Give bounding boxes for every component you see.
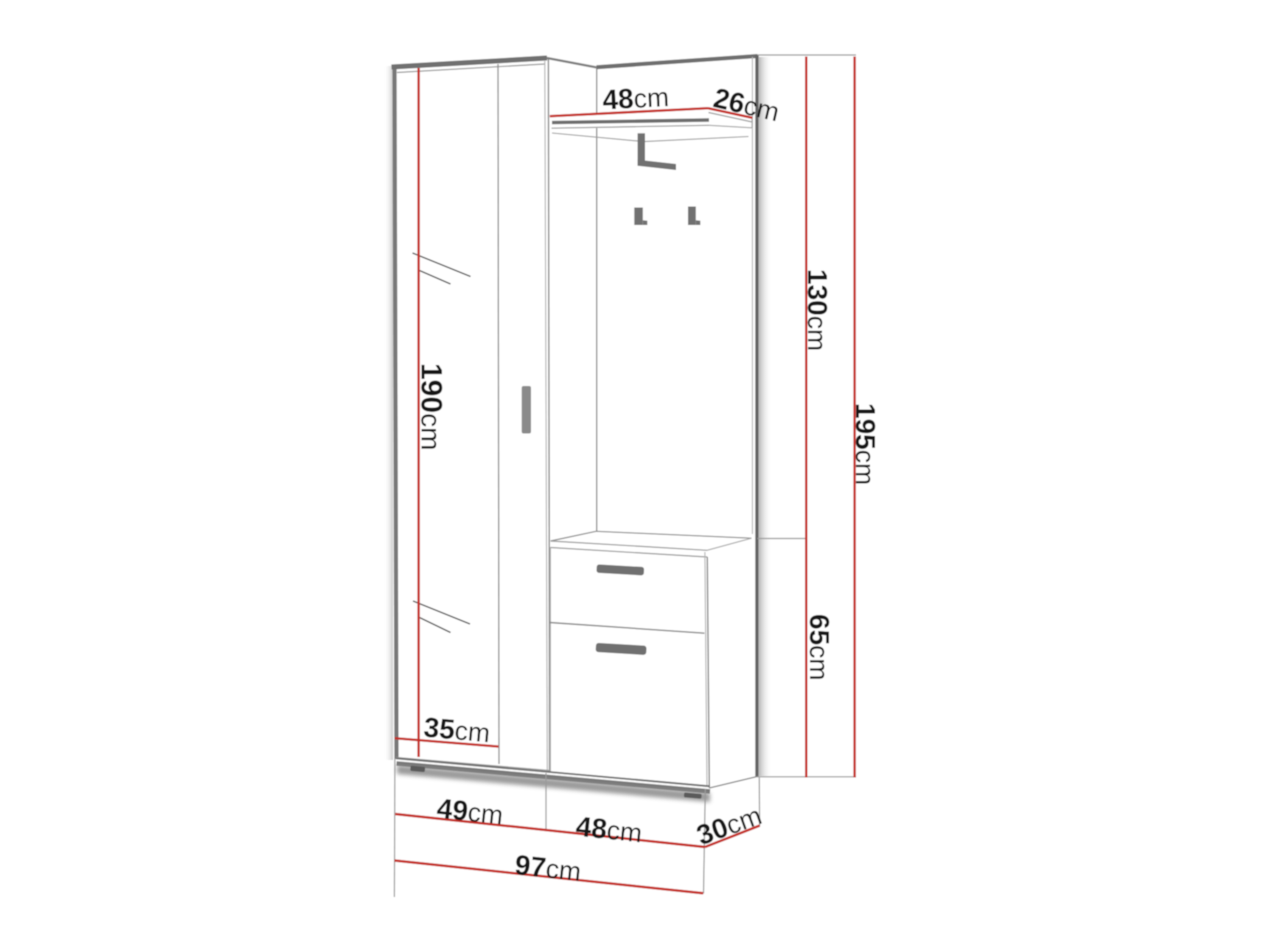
svg-text:65cm: 65cm: [804, 614, 835, 680]
svg-text:190cm: 190cm: [415, 363, 448, 450]
svg-text:195cm: 195cm: [850, 403, 881, 485]
svg-text:130cm: 130cm: [802, 269, 833, 351]
svg-text:35cm: 35cm: [422, 712, 491, 749]
svg-text:48cm: 48cm: [602, 81, 670, 115]
